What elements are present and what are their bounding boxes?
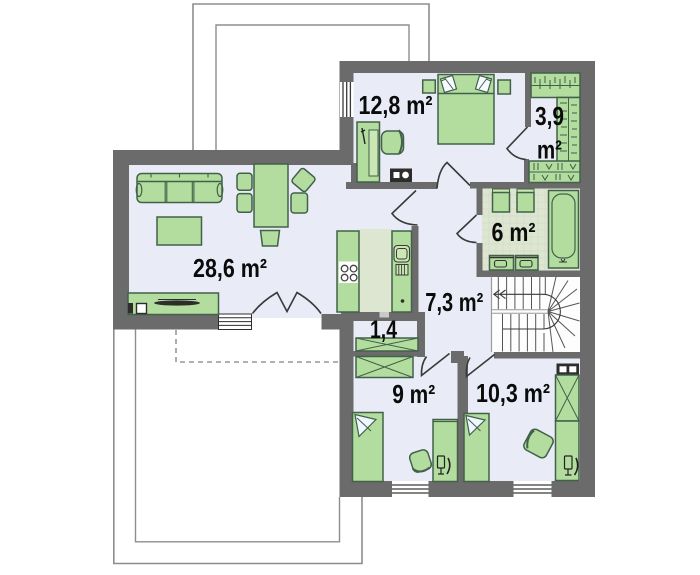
svg-text:3,9: 3,9: [535, 101, 564, 131]
svg-text:m²: m²: [537, 135, 562, 165]
svg-text:12,8 m²: 12,8 m²: [359, 90, 433, 120]
svg-text:10,3 m²: 10,3 m²: [476, 378, 550, 408]
svg-text:9 m²: 9 m²: [392, 379, 435, 409]
svg-text:1,4: 1,4: [370, 316, 397, 344]
svg-text:6 m²: 6 m²: [492, 217, 536, 247]
svg-text:28,6 m²: 28,6 m²: [193, 253, 267, 283]
svg-text:7,3 m²: 7,3 m²: [425, 287, 483, 317]
